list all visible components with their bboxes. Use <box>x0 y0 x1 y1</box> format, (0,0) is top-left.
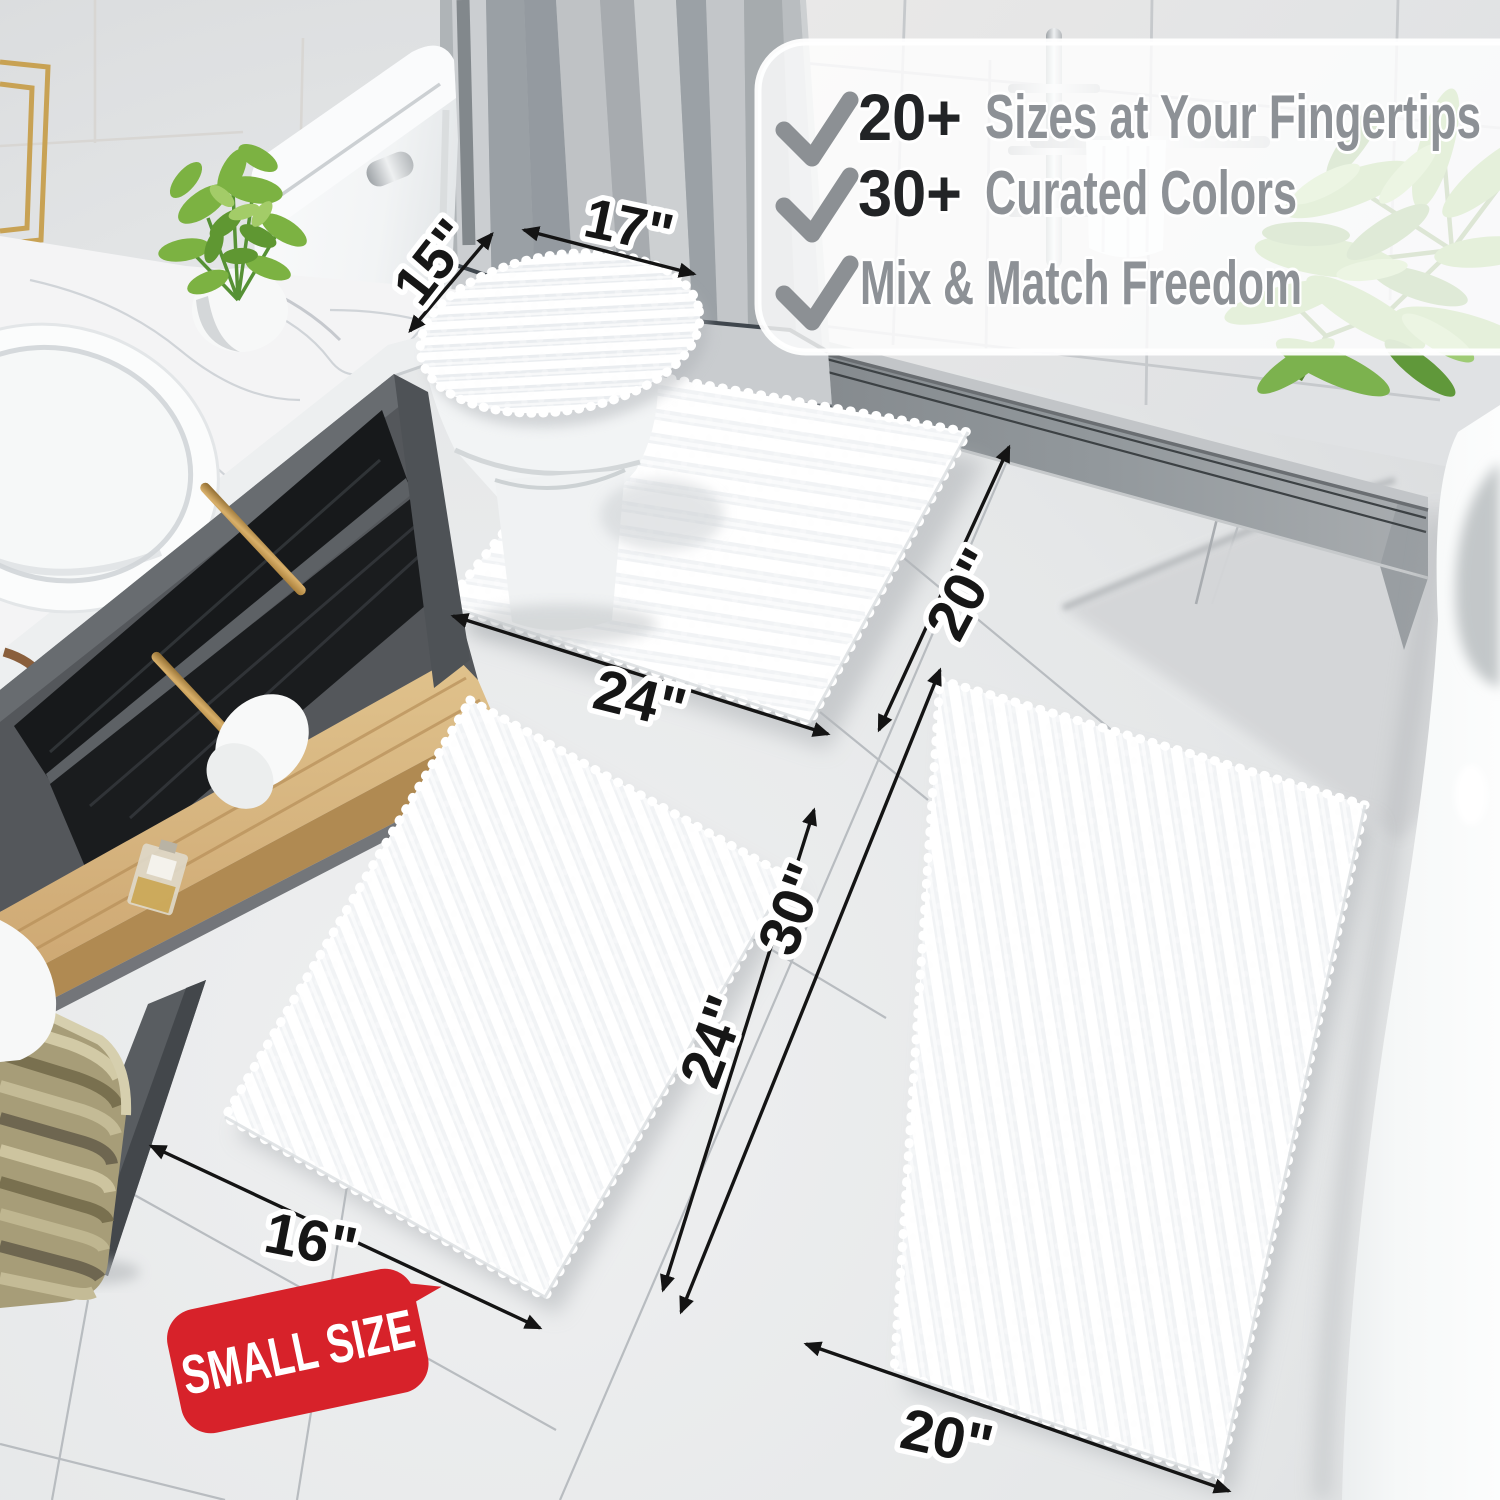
svg-text:Curated Colors: Curated Colors <box>985 159 1297 228</box>
svg-text:Mix & Match Freedom: Mix & Match Freedom <box>860 249 1302 318</box>
svg-text:30+: 30+ <box>858 156 962 230</box>
svg-text:20+: 20+ <box>858 80 962 154</box>
svg-text:Sizes at Your Fingertips: Sizes at Your Fingertips <box>985 83 1481 152</box>
